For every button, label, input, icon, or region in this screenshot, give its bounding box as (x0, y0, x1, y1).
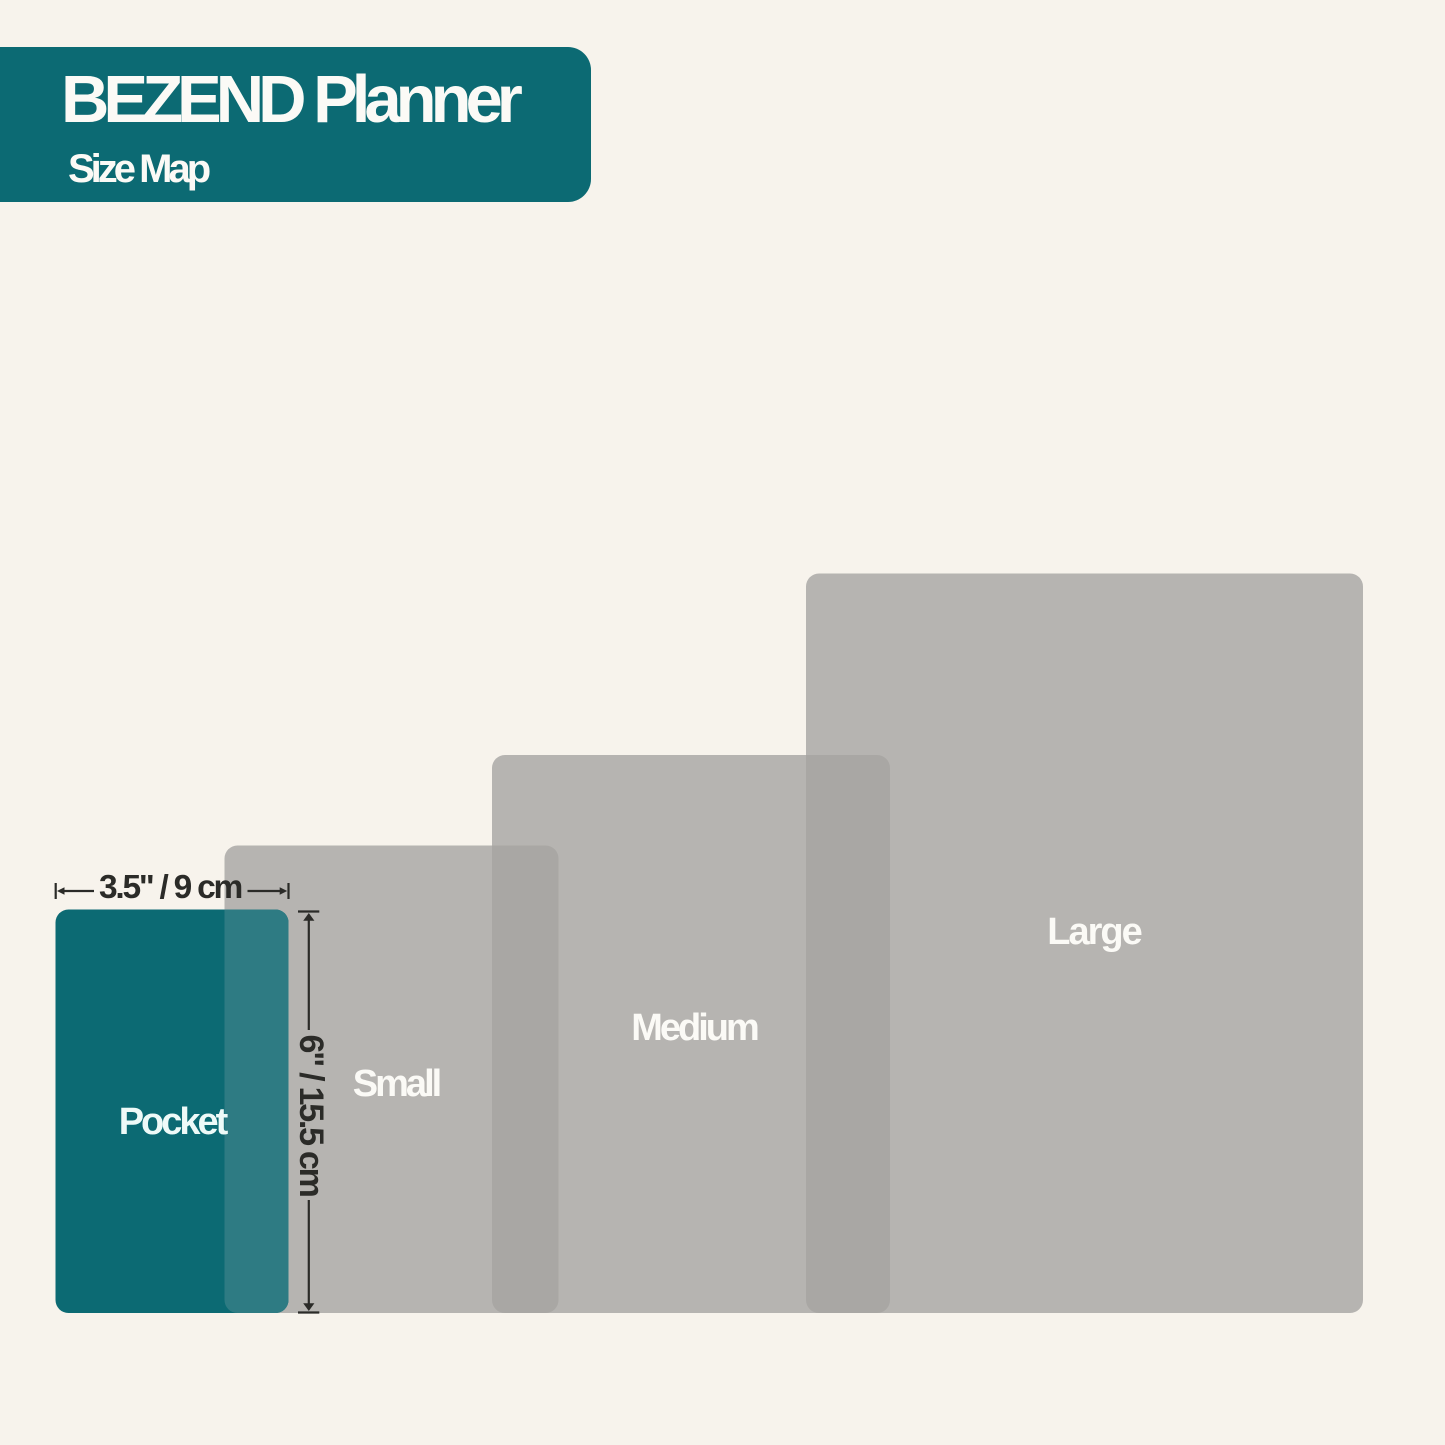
svg-text:Size Map: Size Map (68, 147, 210, 191)
svg-text:Medium: Medium (631, 1007, 758, 1049)
svg-text:6" / 15.5 cm: 6" / 15.5 cm (292, 1034, 330, 1196)
svg-text:Large: Large (1047, 911, 1141, 953)
svg-text:BEZEND Planner: BEZEND Planner (61, 62, 523, 137)
svg-text:3.5" / 9 cm: 3.5" / 9 cm (99, 869, 241, 906)
svg-text:Small: Small (353, 1063, 440, 1105)
svg-text:Pocket: Pocket (119, 1101, 229, 1143)
